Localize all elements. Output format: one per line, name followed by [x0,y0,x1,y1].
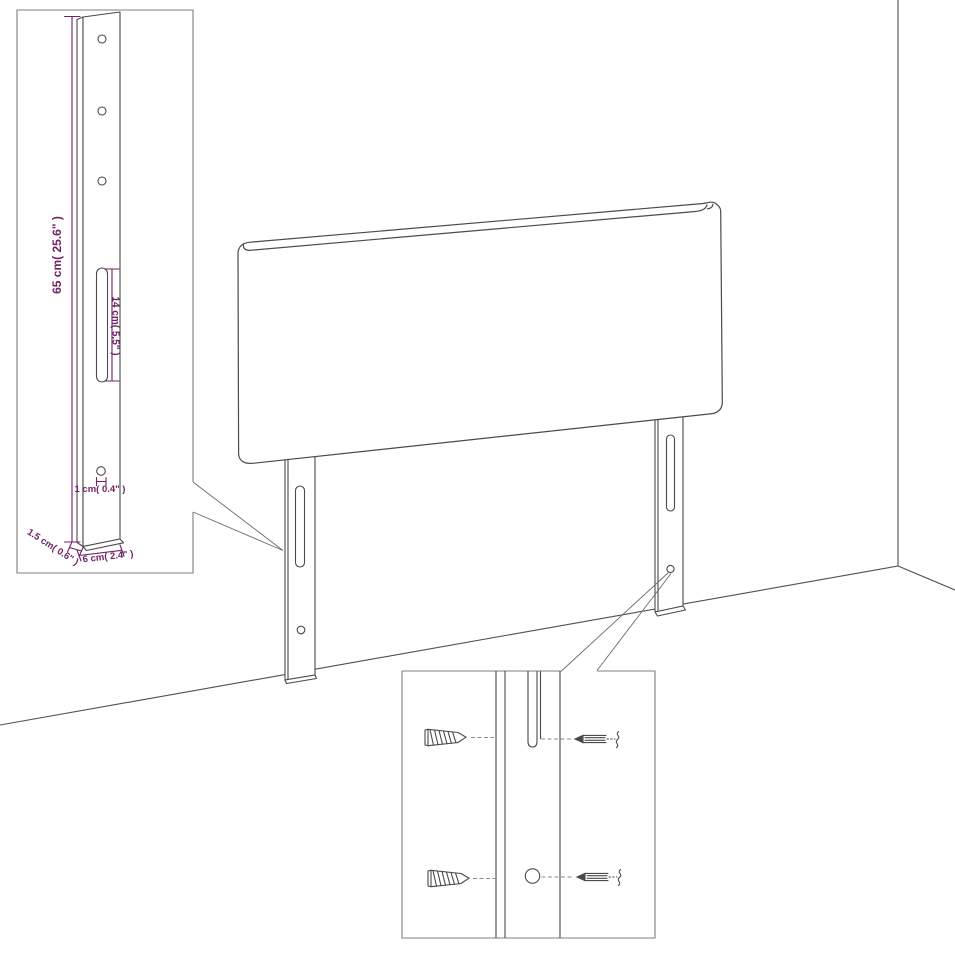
leg-detail-inset: 65 cm( 25.6" ) 14 cm( 5.5" ) 1 cm( 0.4" … [17,10,193,573]
callout-left-leg [193,482,283,551]
inset-leg-slot [97,268,108,382]
diagram-canvas: 65 cm( 25.6" ) 14 cm( 5.5" ) 1 cm( 0.4" … [0,0,955,955]
inset-leg-hole-3 [98,177,106,185]
hole-size-label: 1 cm( 0.4" ) [75,484,126,495]
headboard-assembly-diagram: 65 cm( 25.6" ) 14 cm( 5.5" ) 1 cm( 0.4" … [0,0,955,955]
right-leg-slot [667,435,675,511]
leg-height-label: 65 cm( 25.6" ) [50,216,64,294]
floor-line-right [898,566,955,590]
inset-leg-hole-2 [98,107,106,115]
hardware-detail-inset [402,671,655,938]
left-leg-slot [296,486,305,567]
right-leg-screw-hole [667,565,674,572]
headboard-panel [238,202,722,463]
left-mounting-leg [285,448,317,684]
headboard-outline [238,202,722,463]
slot-length-label: 14 cm( 5.5" ) [110,296,121,355]
callout-lines [193,482,671,671]
right-mounting-leg [655,408,686,616]
left-leg-screw-hole [297,626,305,634]
inset-leg-side-face [77,17,83,547]
inset-leg-small-hole [97,467,106,476]
inset-leg-hole-1 [98,35,106,43]
